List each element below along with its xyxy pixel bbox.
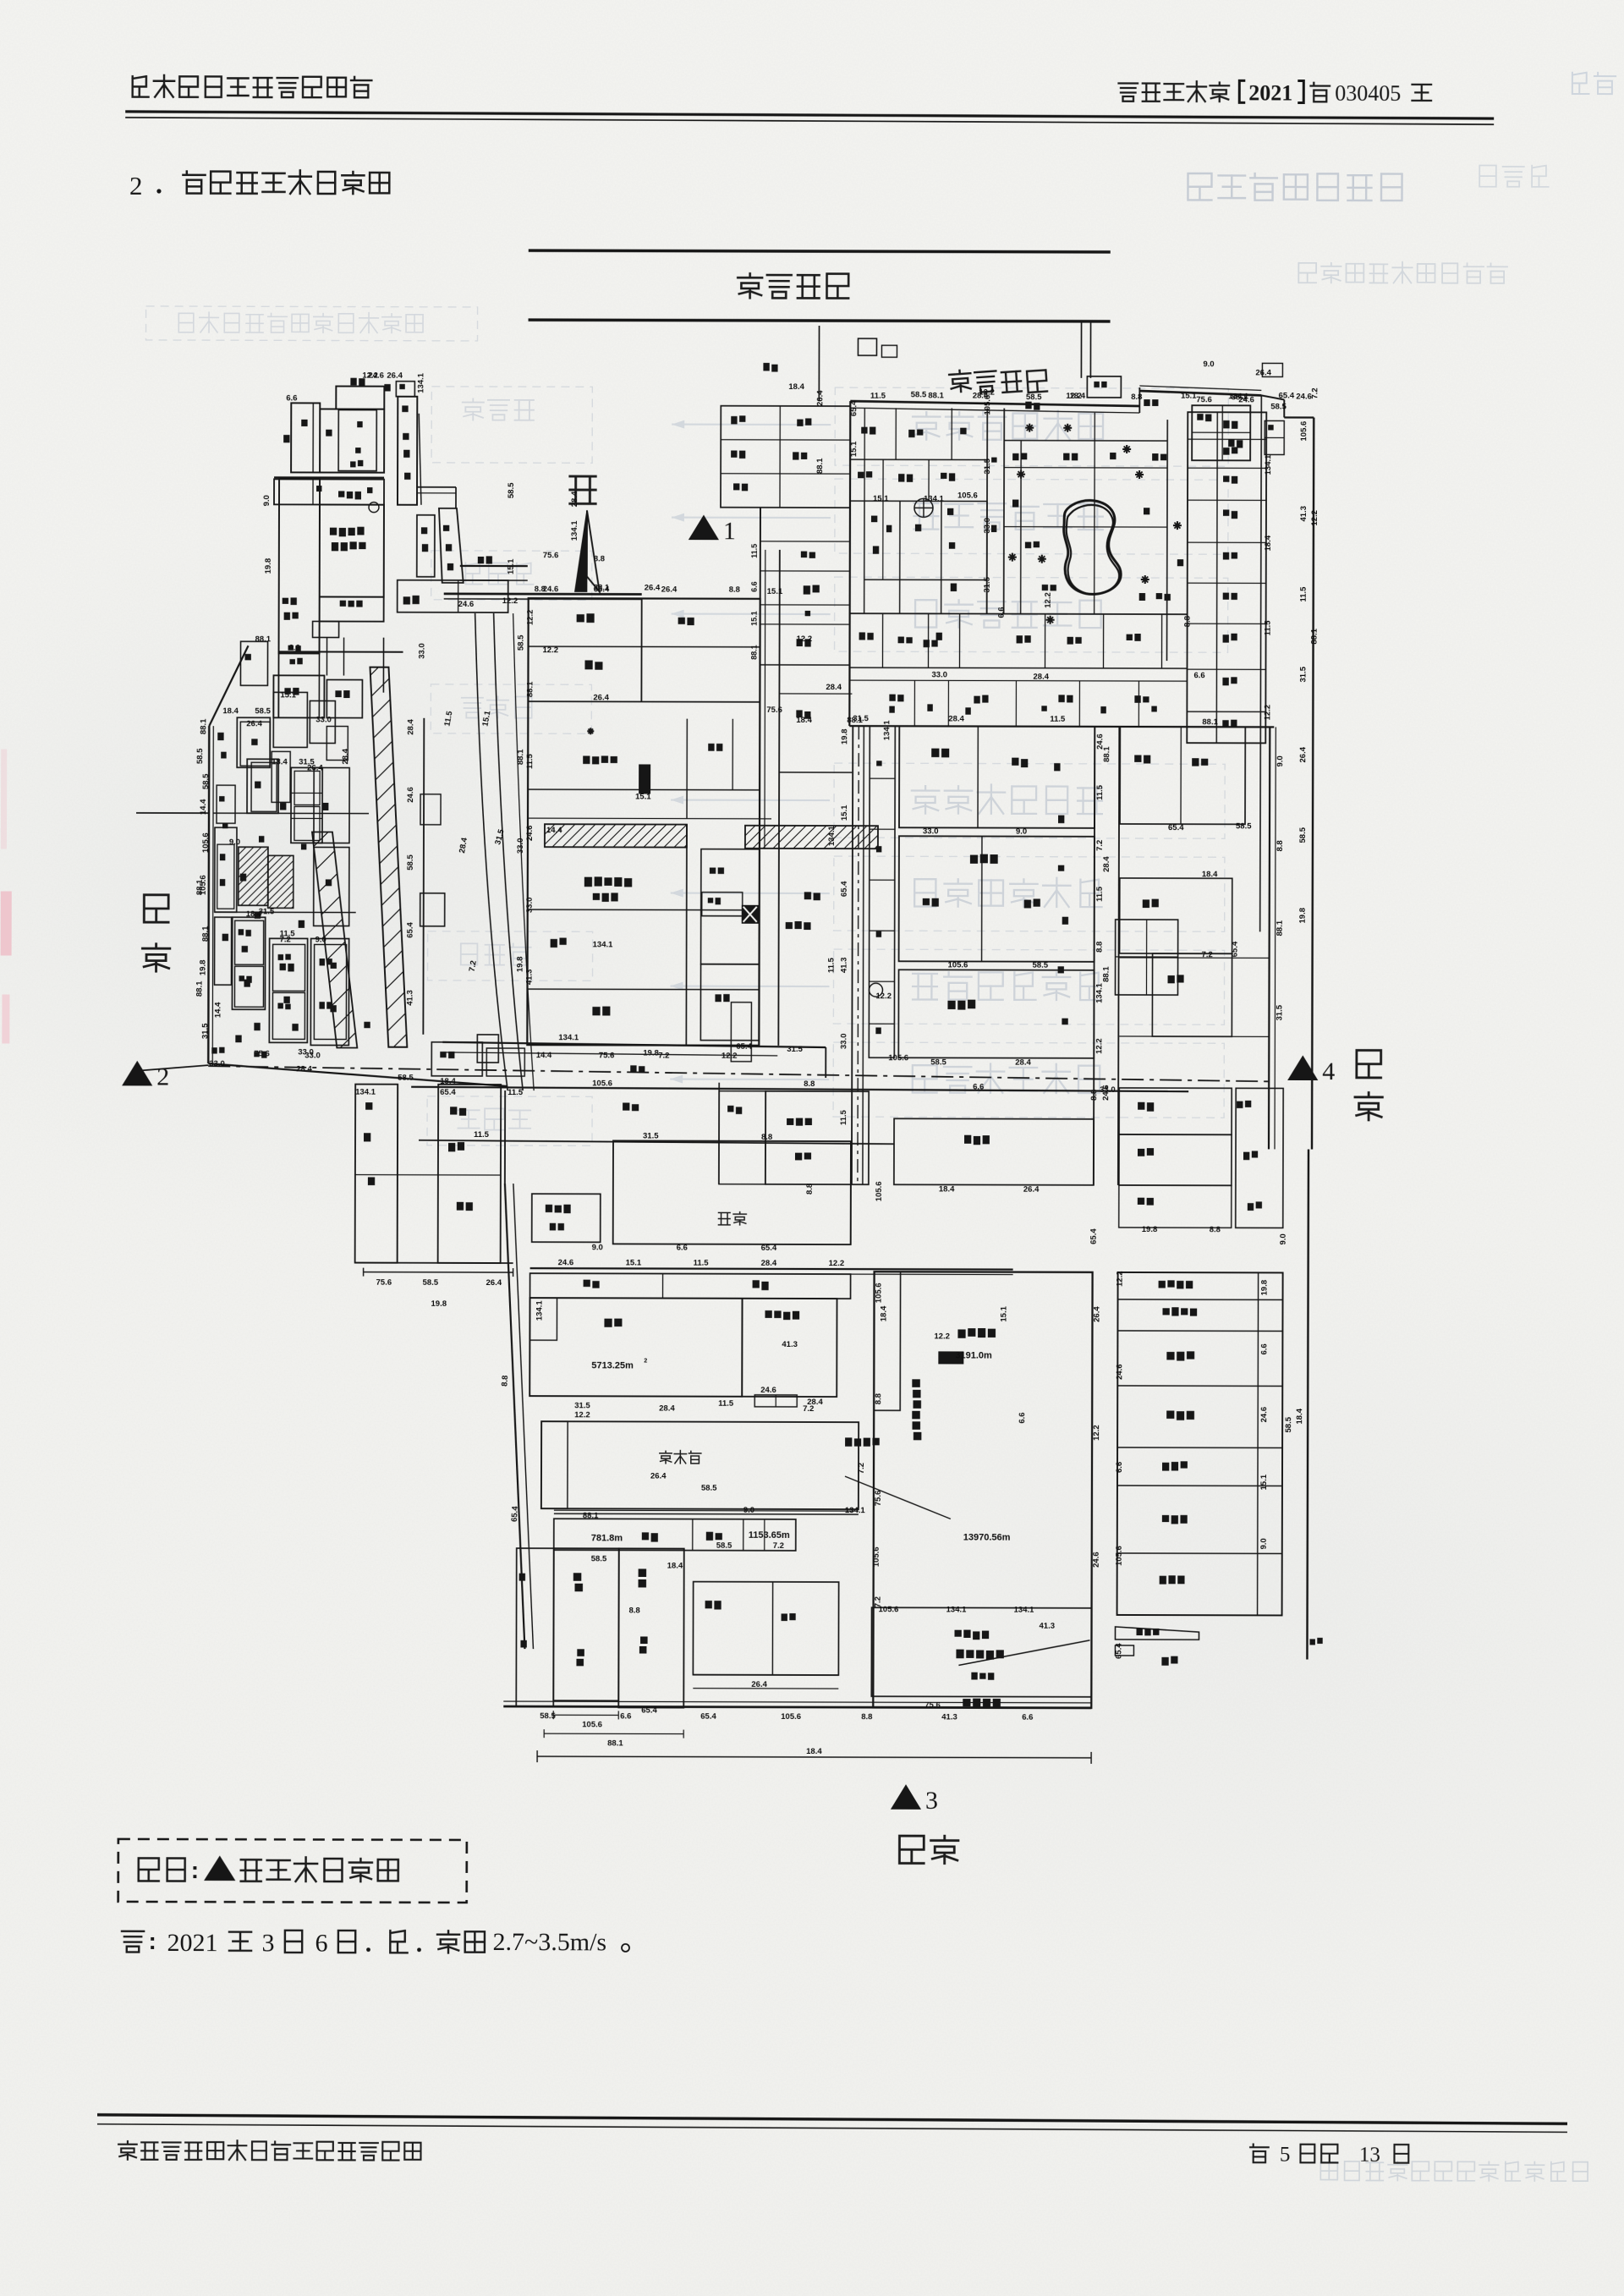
svg-text:134.1: 134.1 <box>1228 392 1249 401</box>
svg-text:33.0: 33.0 <box>209 1059 225 1068</box>
svg-text:7.2: 7.2 <box>280 935 291 944</box>
svg-text:24.6: 24.6 <box>368 371 384 381</box>
svg-text:105.6: 105.6 <box>582 1720 602 1729</box>
svg-text:105.6: 105.6 <box>1115 1546 1124 1566</box>
svg-text:88.1: 88.1 <box>525 681 535 697</box>
svg-text:75.6: 75.6 <box>376 1278 392 1288</box>
svg-text:41.3: 41.3 <box>941 1712 957 1722</box>
svg-text:105.6: 105.6 <box>875 1181 884 1201</box>
svg-text:9.0: 9.0 <box>315 935 326 944</box>
svg-text:33.0: 33.0 <box>931 670 947 679</box>
svg-text:31.5: 31.5 <box>200 1023 210 1039</box>
svg-text:11.5: 11.5 <box>474 1130 490 1140</box>
svg-text:13970.56m: 13970.56m <box>963 1532 1011 1542</box>
svg-text:58.5: 58.5 <box>1270 402 1287 411</box>
svg-text:65.4: 65.4 <box>849 400 859 416</box>
svg-text:15.1: 15.1 <box>767 587 783 596</box>
svg-text:12.2: 12.2 <box>979 388 995 398</box>
svg-text:2: 2 <box>129 171 143 200</box>
svg-text:58.5: 58.5 <box>1236 821 1252 831</box>
svg-text:9.0: 9.0 <box>1203 360 1214 369</box>
svg-text:6.6: 6.6 <box>1018 1412 1027 1423</box>
svg-text:12.2: 12.2 <box>526 610 535 626</box>
svg-text:33.0: 33.0 <box>839 1034 848 1050</box>
svg-text:18.4: 18.4 <box>796 716 812 725</box>
svg-text:6.6: 6.6 <box>1193 671 1204 680</box>
svg-text:6: 6 <box>315 1929 327 1957</box>
svg-text:030405: 030405 <box>1335 81 1401 106</box>
svg-text:9.0: 9.0 <box>262 495 272 506</box>
svg-text:18.4: 18.4 <box>788 382 804 392</box>
svg-text:7.2: 7.2 <box>803 1404 814 1414</box>
svg-text:31.5: 31.5 <box>787 1045 803 1054</box>
svg-text:58.5: 58.5 <box>716 1541 732 1551</box>
svg-text:11.5: 11.5 <box>718 1399 734 1409</box>
svg-text:31.5: 31.5 <box>1298 666 1308 682</box>
svg-text:12.2: 12.2 <box>502 596 518 606</box>
svg-text:18.4: 18.4 <box>246 909 262 919</box>
svg-text:58.5: 58.5 <box>195 748 205 764</box>
svg-text:41.3: 41.3 <box>782 1340 798 1349</box>
svg-text:26.4: 26.4 <box>650 1472 667 1481</box>
svg-text:7.2: 7.2 <box>773 1541 784 1551</box>
svg-text:11.5: 11.5 <box>525 753 535 769</box>
svg-text:19.8: 19.8 <box>1142 1225 1158 1234</box>
svg-text:8.8: 8.8 <box>1131 393 1142 402</box>
svg-text:7.2: 7.2 <box>1095 840 1105 851</box>
svg-text:6.6: 6.6 <box>286 393 297 403</box>
svg-text:65.4: 65.4 <box>700 1712 716 1722</box>
svg-text:134.1: 134.1 <box>827 826 837 847</box>
svg-text:134.1: 134.1 <box>593 940 614 949</box>
svg-text:12.2: 12.2 <box>1095 1038 1104 1054</box>
svg-text:7.2: 7.2 <box>1202 950 1213 959</box>
svg-text:65.4: 65.4 <box>1279 391 1295 400</box>
svg-text:65.4: 65.4 <box>1168 823 1184 832</box>
svg-text:6.6: 6.6 <box>677 1244 688 1253</box>
svg-text:105.6: 105.6 <box>199 875 208 895</box>
svg-text:41.3: 41.3 <box>405 990 414 1006</box>
svg-text:7.2: 7.2 <box>1310 387 1319 398</box>
svg-text:8.8: 8.8 <box>1183 616 1193 627</box>
svg-text:15.1: 15.1 <box>750 611 759 626</box>
svg-text:18.4: 18.4 <box>1264 535 1273 551</box>
svg-text:58.5: 58.5 <box>406 854 415 871</box>
svg-text:58.5: 58.5 <box>423 1278 439 1288</box>
svg-text::: : <box>191 1857 199 1883</box>
svg-text:41.3: 41.3 <box>1040 1622 1056 1631</box>
svg-text:19.8: 19.8 <box>431 1299 447 1309</box>
svg-text:9.0: 9.0 <box>1259 1538 1269 1549</box>
svg-text:15.1: 15.1 <box>635 792 651 801</box>
svg-text:65.4: 65.4 <box>1114 1643 1123 1659</box>
svg-text:31.5: 31.5 <box>983 576 992 592</box>
svg-text:18.4: 18.4 <box>222 706 239 716</box>
svg-text:6.6: 6.6 <box>1259 1343 1269 1354</box>
svg-text:5: 5 <box>1280 2143 1291 2166</box>
svg-text:26.4: 26.4 <box>486 1278 502 1288</box>
svg-text:65.4: 65.4 <box>440 1088 456 1097</box>
svg-text:31.5: 31.5 <box>853 714 869 723</box>
svg-text:19.8: 19.8 <box>516 957 525 973</box>
svg-text:26.4: 26.4 <box>661 585 678 595</box>
svg-text:28.4: 28.4 <box>1102 856 1111 872</box>
svg-text:75.6: 75.6 <box>543 551 559 560</box>
svg-text:19.8: 19.8 <box>643 1048 659 1057</box>
svg-text:8.8: 8.8 <box>629 1606 640 1615</box>
svg-text:75.6: 75.6 <box>1196 395 1212 404</box>
svg-text:9.0: 9.0 <box>1016 827 1027 837</box>
svg-text:8.8: 8.8 <box>500 1375 510 1387</box>
svg-text:2.7~3.5m/s: 2.7~3.5m/s <box>492 1928 606 1956</box>
svg-text:14.4: 14.4 <box>213 1002 222 1018</box>
svg-text:6.6: 6.6 <box>1115 1462 1124 1473</box>
svg-text:19.8: 19.8 <box>199 960 208 976</box>
svg-text:26.4: 26.4 <box>307 763 323 772</box>
svg-text:58.5: 58.5 <box>540 1711 556 1721</box>
svg-text:4: 4 <box>1322 1057 1335 1085</box>
svg-text:9.0: 9.0 <box>743 1506 754 1515</box>
svg-text::: : <box>149 1928 156 1954</box>
svg-text:9.0: 9.0 <box>1276 755 1285 766</box>
svg-text:28.4: 28.4 <box>826 683 842 692</box>
svg-text:65.4: 65.4 <box>1089 1228 1099 1244</box>
svg-text:134.1: 134.1 <box>882 720 892 741</box>
svg-text:88.1: 88.1 <box>583 1511 599 1520</box>
svg-text:28.4: 28.4 <box>296 1064 312 1074</box>
svg-text:134.1: 134.1 <box>558 1033 579 1042</box>
svg-text:41.3: 41.3 <box>525 969 535 986</box>
svg-text:134.1: 134.1 <box>1264 454 1273 475</box>
svg-text:8.8: 8.8 <box>1095 942 1105 953</box>
svg-text:8.8: 8.8 <box>1210 1225 1221 1234</box>
svg-text:105.6: 105.6 <box>201 832 211 853</box>
svg-text:11.5: 11.5 <box>1299 586 1309 602</box>
svg-text:105.6: 105.6 <box>983 395 992 415</box>
svg-text:15.1: 15.1 <box>1259 1474 1269 1490</box>
svg-text:31.5: 31.5 <box>983 458 992 474</box>
svg-text:33.0: 33.0 <box>983 518 992 534</box>
svg-text:12.2: 12.2 <box>1044 592 1053 608</box>
svg-text:31.5: 31.5 <box>643 1131 659 1140</box>
svg-text:28.4: 28.4 <box>1015 1058 1031 1068</box>
svg-text:88.1: 88.1 <box>607 1738 623 1748</box>
svg-text:11.5: 11.5 <box>839 1109 848 1125</box>
svg-text:58.5: 58.5 <box>398 1074 414 1083</box>
svg-text:19.8: 19.8 <box>1260 1280 1270 1296</box>
svg-text:33.0: 33.0 <box>516 838 525 854</box>
svg-text:58.5: 58.5 <box>1298 827 1308 843</box>
svg-text:58.5: 58.5 <box>507 482 516 498</box>
svg-text:18.4: 18.4 <box>440 1077 456 1086</box>
svg-text:75.6: 75.6 <box>766 706 782 715</box>
svg-text:19.8: 19.8 <box>1298 908 1308 924</box>
svg-text:88.1: 88.1 <box>815 458 825 474</box>
svg-text:14.4: 14.4 <box>199 799 208 815</box>
svg-text:88.1: 88.1 <box>1310 628 1319 644</box>
svg-text:26.4: 26.4 <box>645 583 661 592</box>
svg-text:6.6: 6.6 <box>973 1082 984 1091</box>
svg-text:18.4: 18.4 <box>1295 1408 1304 1424</box>
svg-text:31.5: 31.5 <box>1275 1004 1284 1020</box>
svg-text:11.5: 11.5 <box>750 544 759 558</box>
svg-text:8.8: 8.8 <box>1276 840 1285 851</box>
svg-text:65.4: 65.4 <box>736 1042 752 1052</box>
svg-text:31.5: 31.5 <box>574 1401 590 1410</box>
svg-text:19.8: 19.8 <box>840 729 849 745</box>
svg-text:18.4: 18.4 <box>1202 870 1218 879</box>
svg-text:18.4: 18.4 <box>1069 392 1085 401</box>
svg-text:58.5: 58.5 <box>1026 393 1042 402</box>
svg-text:18.4: 18.4 <box>272 757 288 766</box>
svg-text:24.6: 24.6 <box>543 585 559 594</box>
svg-text:12.2: 12.2 <box>934 1332 950 1341</box>
svg-text:7.2: 7.2 <box>857 1463 866 1474</box>
svg-text:24.6: 24.6 <box>760 1386 776 1395</box>
svg-text:24.6: 24.6 <box>1296 392 1312 401</box>
svg-text:24.6: 24.6 <box>525 826 535 842</box>
svg-text:26.4: 26.4 <box>1092 1306 1101 1322</box>
svg-text:6.6: 6.6 <box>997 607 1007 618</box>
svg-text:9.0: 9.0 <box>1279 1233 1288 1244</box>
svg-text:134.1: 134.1 <box>416 372 425 393</box>
svg-text:26.4: 26.4 <box>246 719 262 728</box>
svg-text:58.5: 58.5 <box>701 1484 717 1493</box>
svg-text:88.1: 88.1 <box>1102 746 1111 762</box>
svg-text:88.1: 88.1 <box>255 634 272 644</box>
svg-text:24.6: 24.6 <box>558 1258 574 1267</box>
svg-text:2: 2 <box>156 1063 169 1091</box>
svg-text:134.1: 134.1 <box>570 520 579 541</box>
svg-text:781.8m: 781.8m <box>591 1533 623 1543</box>
svg-text:105.6: 105.6 <box>872 1546 881 1567</box>
svg-text:105.6: 105.6 <box>781 1712 801 1722</box>
svg-text:8.8: 8.8 <box>594 554 605 563</box>
svg-text:1153.65m: 1153.65m <box>749 1530 790 1541</box>
svg-text:3: 3 <box>925 1787 938 1815</box>
svg-text:11.5: 11.5 <box>507 1088 524 1097</box>
svg-text:11.5: 11.5 <box>1095 784 1105 800</box>
svg-text:15.1: 15.1 <box>1181 391 1197 400</box>
svg-text:12.2: 12.2 <box>1116 1271 1125 1287</box>
svg-text:28.4: 28.4 <box>948 714 964 723</box>
svg-text:12.2: 12.2 <box>721 1052 738 1061</box>
svg-text:8.8: 8.8 <box>729 585 740 595</box>
svg-text:65.4: 65.4 <box>641 1706 657 1715</box>
svg-text:26.4: 26.4 <box>751 1680 767 1689</box>
svg-text:11.5: 11.5 <box>1095 886 1105 902</box>
svg-text:134.1: 134.1 <box>535 1300 544 1321</box>
svg-text:26.4: 26.4 <box>1298 746 1308 762</box>
svg-text:6.6: 6.6 <box>1022 1713 1033 1722</box>
svg-text:105.6: 105.6 <box>957 491 978 500</box>
svg-text:12.2: 12.2 <box>829 1259 845 1268</box>
svg-text:88.1: 88.1 <box>516 749 525 765</box>
svg-text:8.8: 8.8 <box>804 1079 815 1089</box>
svg-text:24.6: 24.6 <box>1259 1407 1269 1423</box>
svg-text:14.4: 14.4 <box>546 826 562 835</box>
svg-text:3191.0m: 3191.0m <box>955 1350 992 1360</box>
svg-text:15.1: 15.1 <box>999 1305 1008 1321</box>
svg-text:24.6: 24.6 <box>406 787 415 803</box>
svg-text:105.6: 105.6 <box>1299 421 1309 442</box>
svg-text:58.5: 58.5 <box>591 1554 607 1563</box>
svg-text:18.4: 18.4 <box>667 1562 683 1571</box>
svg-text:75.6: 75.6 <box>874 1491 883 1507</box>
svg-text:105.6: 105.6 <box>948 960 968 969</box>
svg-text:12.2: 12.2 <box>1263 705 1272 721</box>
svg-text:24.6: 24.6 <box>458 600 475 609</box>
svg-text:15.1: 15.1 <box>507 558 516 574</box>
svg-text:58.5: 58.5 <box>1033 961 1049 970</box>
svg-text:13: 13 <box>1359 2144 1380 2167</box>
svg-text:8.8: 8.8 <box>761 1133 772 1142</box>
svg-text:58.5: 58.5 <box>930 1057 946 1067</box>
svg-text:134.1: 134.1 <box>845 1506 866 1515</box>
svg-text:24.6: 24.6 <box>1092 1552 1101 1568</box>
svg-text:134.1: 134.1 <box>355 1088 376 1097</box>
svg-text:2021: 2021 <box>1248 80 1292 105</box>
svg-text:105.6: 105.6 <box>879 1605 899 1614</box>
svg-text:58.5: 58.5 <box>517 634 526 651</box>
svg-text:11.5: 11.5 <box>1264 620 1273 636</box>
svg-text:134.1: 134.1 <box>924 494 945 503</box>
svg-text:12.2: 12.2 <box>574 1410 590 1420</box>
svg-text:134.1: 134.1 <box>1095 982 1104 1003</box>
svg-text:88.1: 88.1 <box>928 391 944 400</box>
svg-text:11.5: 11.5 <box>694 1259 710 1268</box>
svg-text:18.4: 18.4 <box>939 1184 955 1194</box>
svg-text:41.3: 41.3 <box>840 958 849 974</box>
svg-text:2021: 2021 <box>167 1929 217 1957</box>
svg-text:41.3: 41.3 <box>1299 506 1309 522</box>
svg-text:15.1: 15.1 <box>840 805 849 821</box>
svg-text:11.5: 11.5 <box>870 392 886 401</box>
svg-text:88.1: 88.1 <box>1276 920 1285 936</box>
svg-text:19.8: 19.8 <box>264 558 273 574</box>
svg-text:58.5: 58.5 <box>1284 1416 1293 1432</box>
svg-text:105.6: 105.6 <box>875 1283 884 1303</box>
svg-text:8.8: 8.8 <box>805 1184 815 1195</box>
svg-text:26.4: 26.4 <box>815 390 825 406</box>
svg-text:105.6: 105.6 <box>592 1079 612 1088</box>
svg-text:65.4: 65.4 <box>761 1244 777 1253</box>
svg-text:6.6: 6.6 <box>750 581 759 592</box>
svg-text:11.5: 11.5 <box>1050 715 1066 724</box>
svg-text:33.0: 33.0 <box>1100 1085 1116 1095</box>
svg-text:28.4: 28.4 <box>406 719 415 735</box>
svg-text:33.0: 33.0 <box>923 827 939 836</box>
svg-text:15.1: 15.1 <box>849 441 859 457</box>
svg-text:58.5: 58.5 <box>255 706 271 716</box>
svg-text:18.4: 18.4 <box>879 1305 888 1321</box>
svg-text:88.1: 88.1 <box>195 980 204 997</box>
svg-text:88.1: 88.1 <box>199 718 208 734</box>
svg-text:58.5: 58.5 <box>201 773 211 789</box>
svg-text:88.1: 88.1 <box>1102 966 1111 982</box>
svg-text:11.5: 11.5 <box>827 957 837 973</box>
svg-text:26.4: 26.4 <box>1023 1185 1040 1195</box>
svg-text:28.4: 28.4 <box>570 491 579 507</box>
svg-text:8.8: 8.8 <box>861 1712 872 1722</box>
svg-text:2: 2 <box>644 1358 647 1364</box>
svg-text:26.4: 26.4 <box>593 693 609 702</box>
svg-text:28.4: 28.4 <box>341 748 350 764</box>
svg-text:88.1: 88.1 <box>750 645 759 660</box>
svg-text:75.6: 75.6 <box>599 1051 615 1060</box>
svg-text:105.6: 105.6 <box>888 1053 908 1063</box>
svg-text:28.4: 28.4 <box>761 1259 777 1268</box>
svg-text:33.0: 33.0 <box>418 643 427 659</box>
svg-text:12.2: 12.2 <box>1310 510 1319 526</box>
svg-text:65.4: 65.4 <box>406 922 415 938</box>
svg-text:33.0: 33.0 <box>304 1051 321 1060</box>
svg-text:7.2: 7.2 <box>658 1052 669 1061</box>
svg-text:15.1: 15.1 <box>626 1258 642 1267</box>
svg-text:65.4: 65.4 <box>1231 941 1240 957</box>
svg-text:8.8: 8.8 <box>874 1393 883 1404</box>
svg-text:28.4: 28.4 <box>659 1404 675 1414</box>
svg-text:28.4: 28.4 <box>1033 673 1049 682</box>
svg-text:75.6: 75.6 <box>924 1700 941 1710</box>
svg-text:134.1: 134.1 <box>1014 1606 1035 1615</box>
svg-text:12.2: 12.2 <box>1092 1425 1101 1441</box>
svg-text:88.1: 88.1 <box>594 583 610 592</box>
svg-text:6.6: 6.6 <box>289 643 300 652</box>
svg-text:88.1: 88.1 <box>201 926 211 942</box>
svg-text:12.2: 12.2 <box>797 634 813 644</box>
svg-text:7.2: 7.2 <box>468 960 479 973</box>
svg-text:88.1: 88.1 <box>1202 717 1218 727</box>
svg-text:26.4: 26.4 <box>387 371 403 381</box>
svg-text:134.1: 134.1 <box>946 1605 968 1614</box>
svg-text:14.4: 14.4 <box>536 1051 552 1060</box>
svg-text:58.5: 58.5 <box>911 390 927 399</box>
svg-text:33.0: 33.0 <box>525 898 535 914</box>
svg-text:9.0: 9.0 <box>592 1243 603 1252</box>
svg-text:3: 3 <box>261 1929 274 1957</box>
svg-text:18.4: 18.4 <box>806 1747 822 1756</box>
svg-text:24.6: 24.6 <box>1115 1364 1124 1380</box>
svg-text:65.4: 65.4 <box>840 881 849 897</box>
svg-text:65.4: 65.4 <box>510 1505 520 1522</box>
svg-text:12.2: 12.2 <box>543 645 559 655</box>
svg-text:1: 1 <box>723 517 736 545</box>
svg-text:15.1: 15.1 <box>873 494 889 503</box>
svg-text:5713.25m: 5713.25m <box>591 1360 634 1370</box>
svg-text:6.6: 6.6 <box>620 1711 631 1721</box>
